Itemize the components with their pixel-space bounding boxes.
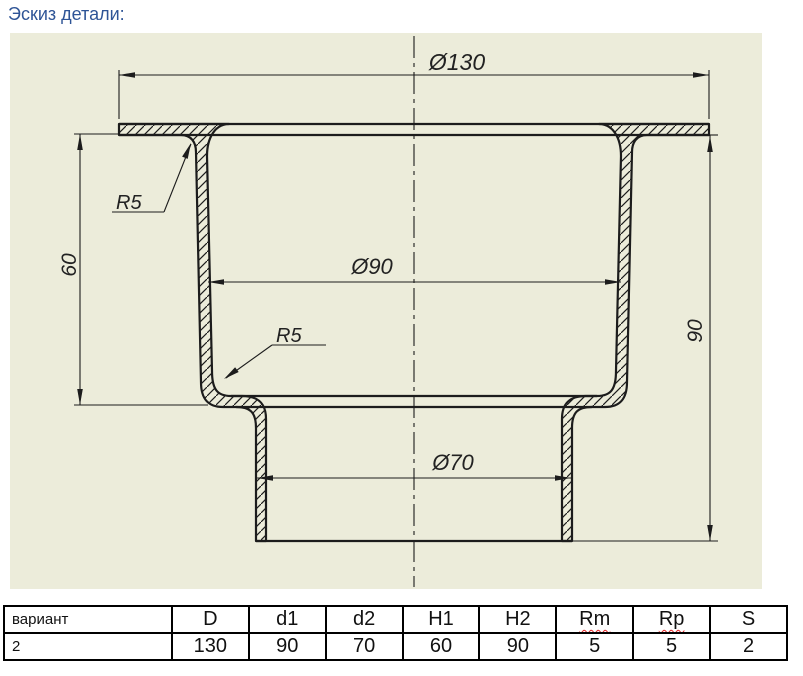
table-header-H2: H2 xyxy=(479,606,556,633)
table-cell-d2: 70 xyxy=(326,633,403,660)
part-section-left xyxy=(119,124,266,541)
variant-table: вариантDd1d2H1H2RmRpS 213090706090552 xyxy=(3,605,788,661)
table-header-label: S xyxy=(742,608,755,630)
table-cell-Rp: 5 xyxy=(633,633,710,660)
table-header-Rm: Rm xyxy=(556,606,633,633)
table-header-label: Rm xyxy=(579,608,610,630)
arrow-down-icon xyxy=(707,525,713,541)
table-header-label: H1 xyxy=(428,608,454,630)
table-header-label: Rp xyxy=(659,608,685,630)
radius-callout-bottom: R5 xyxy=(224,325,326,379)
leader-arrow-icon xyxy=(182,143,191,159)
dim-label-cup-height: 60 xyxy=(58,253,81,277)
table-header-label: H2 xyxy=(505,608,531,630)
table-header-S: S xyxy=(710,606,787,633)
dim-cup-height: 60 xyxy=(58,134,208,405)
table-header-row: вариантDd1d2H1H2RmRpS xyxy=(4,606,787,633)
table-cell-H2: 90 xyxy=(479,633,556,660)
table-header-Rp: Rp xyxy=(633,606,710,633)
table-header-label: d1 xyxy=(276,608,298,630)
leader-arrow-icon xyxy=(224,367,239,379)
table-cell-вариант: 2 xyxy=(4,633,172,660)
table-cell-H1: 60 xyxy=(403,633,480,660)
table-cell-S: 2 xyxy=(710,633,787,660)
table-header-d2: d2 xyxy=(326,606,403,633)
table-header-d1: d1 xyxy=(249,606,326,633)
table-cell-d1: 90 xyxy=(249,633,326,660)
table-header-D: D xyxy=(172,606,249,633)
page-title: Эскиз детали: xyxy=(8,4,125,25)
arrow-right-icon xyxy=(693,72,709,78)
radius-label-bottom: R5 xyxy=(276,325,302,347)
table-header-label: D xyxy=(203,608,217,630)
part-sketch-panel: Ø130 Ø90 Ø70 60 xyxy=(10,33,762,589)
table-header-label: вариант xyxy=(12,611,68,628)
part-sketch-drawing: Ø130 Ø90 Ø70 60 xyxy=(10,33,762,589)
arrow-up-icon xyxy=(707,136,713,152)
dim-label-cup-diameter: Ø90 xyxy=(350,254,393,279)
table-cell-D: 130 xyxy=(172,633,249,660)
dim-label-total-height: 90 xyxy=(684,319,707,343)
table-header-вариант: вариант xyxy=(4,606,172,633)
arrow-down-icon xyxy=(77,389,83,405)
table-cell-Rm: 5 xyxy=(556,633,633,660)
dim-label-bottom-diameter: Ø70 xyxy=(431,450,474,475)
dim-label-flange-diameter: Ø130 xyxy=(428,49,485,75)
arrow-up-icon xyxy=(77,134,83,150)
radius-callout-top: R5 xyxy=(112,143,191,214)
dim-total-height: 90 xyxy=(573,135,718,541)
table-header-label: d2 xyxy=(353,608,375,630)
radius-label-top: R5 xyxy=(116,192,142,214)
table-header-H1: H1 xyxy=(403,606,480,633)
table-data-row: 213090706090552 xyxy=(4,633,787,660)
arrow-left-icon xyxy=(119,72,135,78)
